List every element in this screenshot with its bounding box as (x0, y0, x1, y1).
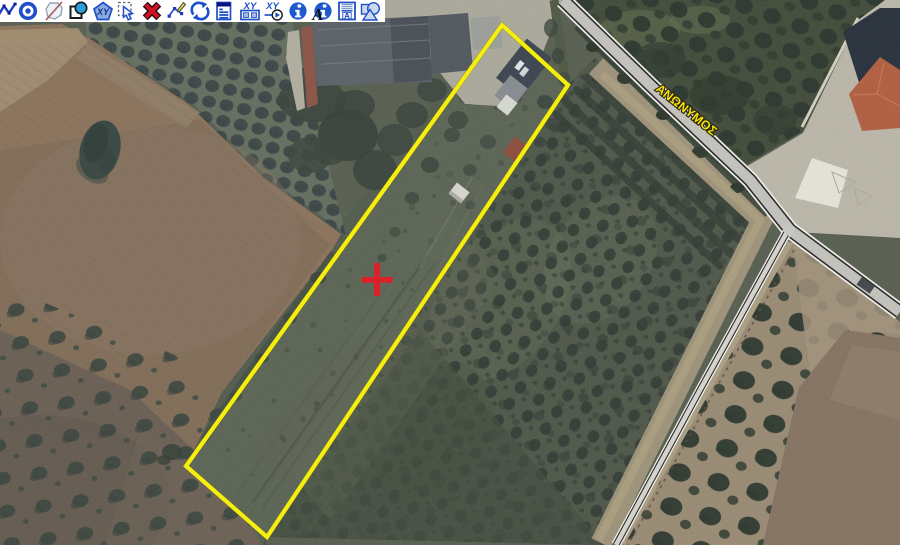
svg-text:A: A (344, 11, 350, 20)
svg-text:XY: XY (96, 7, 110, 17)
svg-text:A: A (311, 5, 323, 24)
